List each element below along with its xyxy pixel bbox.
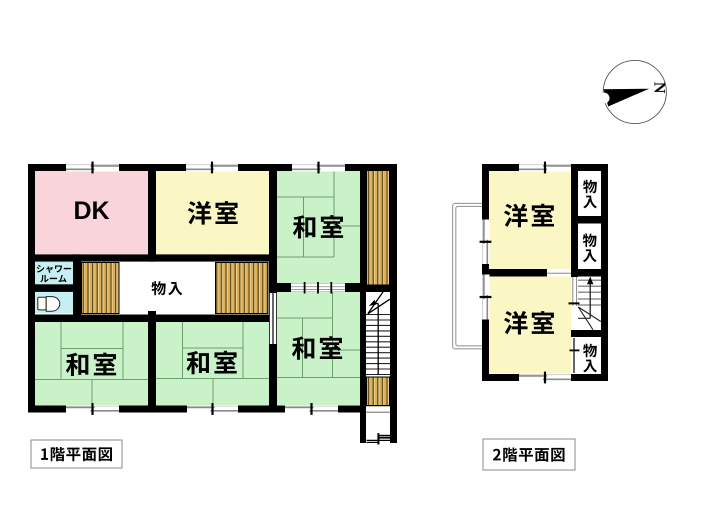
- svg-text:DK: DK: [73, 197, 109, 225]
- svg-text:N: N: [650, 82, 667, 94]
